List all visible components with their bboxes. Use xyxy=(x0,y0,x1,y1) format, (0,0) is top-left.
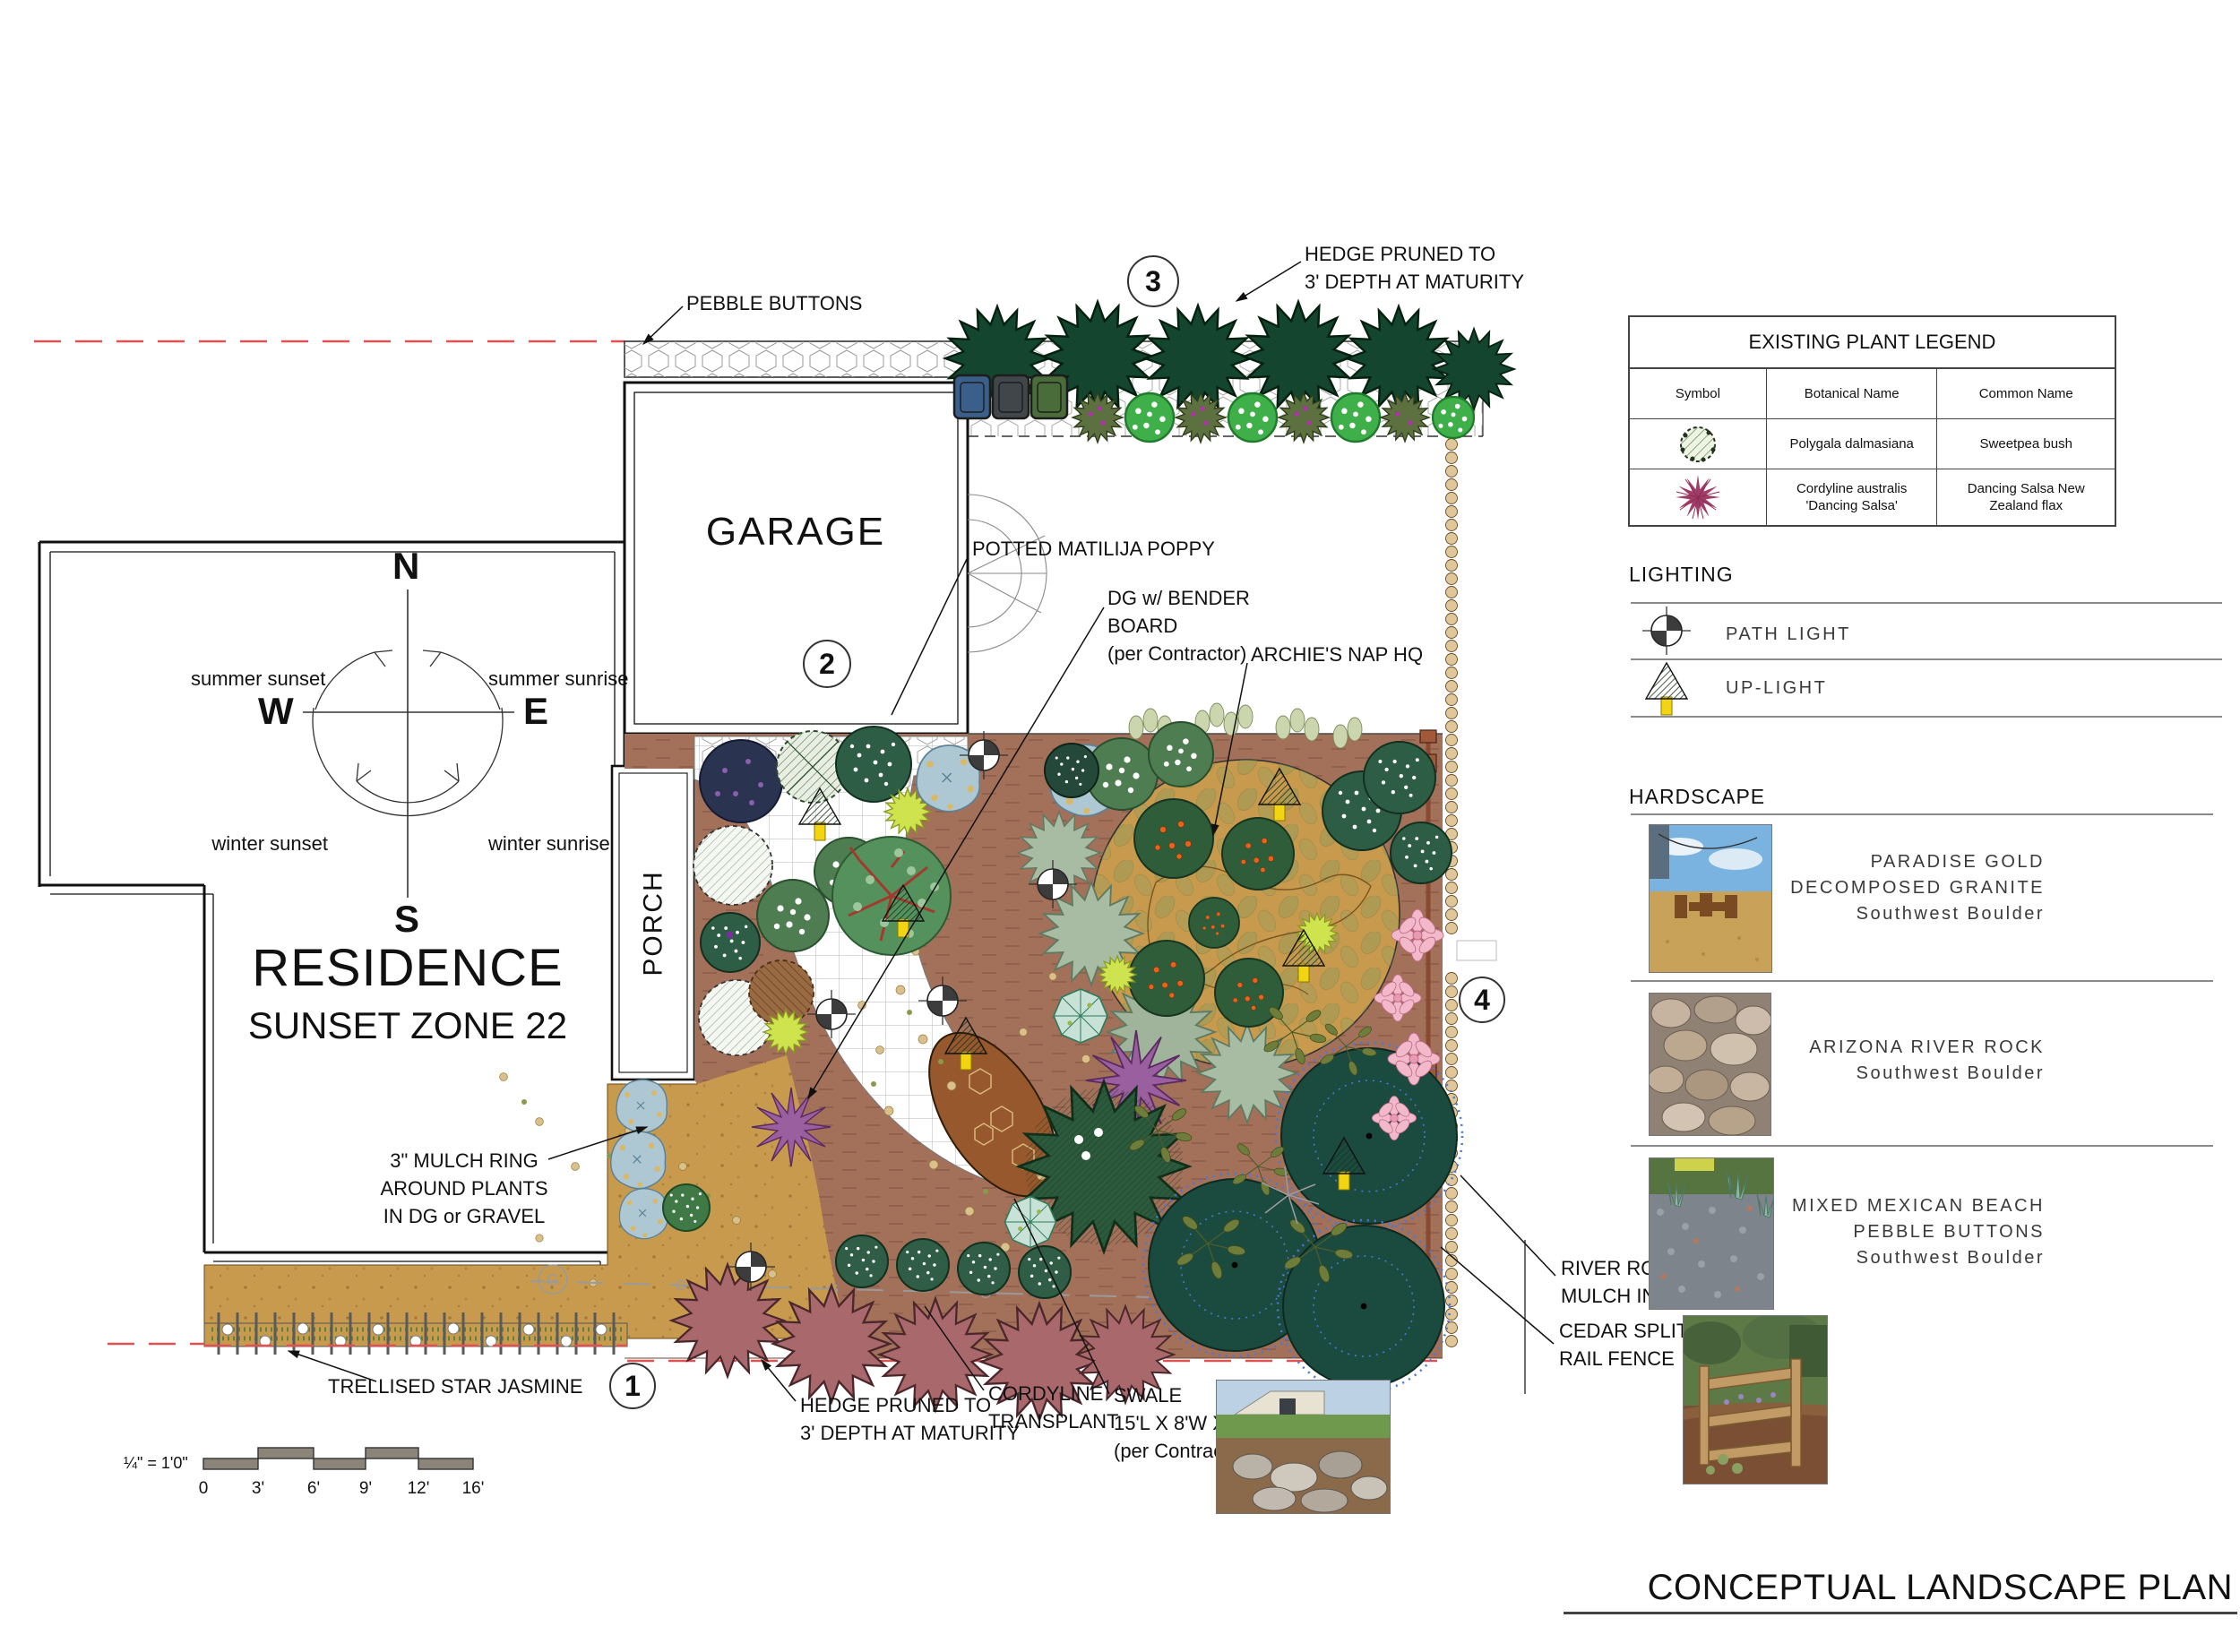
existing-tree-fan xyxy=(968,495,1047,652)
legend-header-botanical: Botanical Name xyxy=(1767,369,1938,419)
hedge-bottom-label: HEDGE PRUNED TO 3' DEPTH AT MATURITY xyxy=(800,1391,1020,1447)
path-light-label: PATH LIGHT xyxy=(1726,622,1851,648)
divider xyxy=(1631,980,2213,982)
mexican-pebble-photo xyxy=(1649,1157,1774,1310)
compass-south: S xyxy=(394,898,419,941)
legend-header-row: Symbol Botanical Name Common Name xyxy=(1630,369,2115,419)
compass-rose xyxy=(303,589,514,898)
up-light-icon xyxy=(1646,663,1687,715)
title-block-rule xyxy=(1564,1612,2237,1614)
legend-title: EXISTING PLANT LEGEND xyxy=(1630,317,2115,369)
scale-tick-3: 3' xyxy=(240,1475,276,1502)
divider xyxy=(1631,1145,2213,1147)
river-rock-edge xyxy=(1446,439,1458,1347)
keynote-marker-2: 2 xyxy=(803,640,851,688)
divider xyxy=(1631,716,2222,718)
winter-sunrise-label: winter sunrise xyxy=(488,830,610,857)
landscape-plan-sheet: G G G G xyxy=(0,0,2240,1652)
compass-west: W xyxy=(258,690,294,733)
sheet-title: CONCEPTUAL LANDSCAPE PLAN xyxy=(1648,1568,2233,1608)
trellised-jasmine-label: TRELLISED STAR JASMINE xyxy=(328,1372,582,1400)
mexican-beach-pebble-label: MIXED MEXICAN BEACH PEBBLE BUTTONS South… xyxy=(1783,1193,2045,1271)
keynote-marker-4: 4 xyxy=(1459,977,1505,1023)
sweetpea-plant-symbol xyxy=(1630,419,1767,469)
legend-row-sweetpea: Polygala dalmasiana Sweetpea bush xyxy=(1630,419,2115,469)
keynote-marker-3: 3 xyxy=(1127,255,1179,307)
garage-label: GARAGE xyxy=(661,518,930,546)
cordyline-transplant-label: CORDYLINE TRANSPLANT xyxy=(988,1380,1118,1435)
winter-sunset-label: winter sunset xyxy=(194,830,328,857)
river-rock-photo xyxy=(1649,993,1771,1136)
divider xyxy=(1631,658,2222,660)
decomposed-granite-photo xyxy=(1649,824,1772,973)
compass-north: N xyxy=(392,545,419,588)
residence-subtitle: SUNSET ZONE 22 xyxy=(215,1005,600,1046)
fence-gap-marker xyxy=(1457,941,1496,960)
svg-text:G: G xyxy=(547,1271,559,1289)
cedar-fence-photo xyxy=(1683,1315,1828,1484)
existing-plant-legend: EXISTING PLANT LEGEND Symbol Botanical N… xyxy=(1628,315,2116,527)
legend-header-common: Common Name xyxy=(1937,369,2115,419)
mulch-ring-label: 3" MULCH RING AROUND PLANTS IN DG or GRA… xyxy=(366,1147,563,1230)
hardscape-section-title: HARDSCAPE xyxy=(1629,785,1765,809)
pebble-buttons-strip xyxy=(625,341,968,377)
swale-photo xyxy=(1216,1380,1391,1514)
scale-tick-9: 9' xyxy=(348,1475,383,1502)
divider xyxy=(1631,813,2213,815)
lighting-section-title: LIGHTING xyxy=(1629,563,1734,587)
legend-row-flax: Cordyline australis 'Dancing Salsa' Danc… xyxy=(1630,469,2115,525)
cedar-fence-note: CEDAR SPLIT- RAIL FENCE xyxy=(1559,1317,1693,1372)
residence-title: RESIDENCE xyxy=(215,942,600,994)
svg-text:G: G xyxy=(676,1278,686,1294)
paradise-gold-label: PARADISE GOLD DECOMPOSED GRANITE Southwe… xyxy=(1783,849,2045,927)
porch-label: PORCH xyxy=(640,861,668,986)
up-light-label: UP-LIGHT xyxy=(1726,675,1827,701)
keynote-marker-1: 1 xyxy=(609,1363,656,1409)
arizona-river-rock-label: ARIZONA RIVER ROCK Southwest Boulder xyxy=(1783,1035,2045,1087)
summer-sunset-label: summer sunset xyxy=(191,665,325,693)
summer-sunrise-label: summer sunrise xyxy=(488,665,628,693)
scale-ratio-label: ¼" = 1'0" xyxy=(124,1450,188,1477)
legend-header-symbol: Symbol xyxy=(1630,369,1767,419)
garage-outline xyxy=(625,383,968,734)
flax-starburst-symbol xyxy=(1630,469,1767,525)
scale-tick-6: 6' xyxy=(296,1475,332,1502)
scale-tick-12: 12' xyxy=(401,1475,436,1502)
pebble-buttons-label: PEBBLE BUTTONS xyxy=(686,289,862,317)
potted-poppy-label: POTTED MATILIJA POPPY xyxy=(972,535,1215,563)
archies-nap-label: ARCHIE'S NAP HQ xyxy=(1251,641,1423,668)
hedge-top-label: HEDGE PRUNED TO 3' DEPTH AT MATURITY xyxy=(1305,240,1524,296)
scale-tick-16: 16' xyxy=(455,1475,491,1502)
path-light-icon xyxy=(1642,607,1691,655)
dg-bender-board-label: DG w/ BENDER BOARD (per Contractor) xyxy=(1107,584,1250,667)
planter-pots-row xyxy=(954,375,1067,418)
scale-tick-0: 0 xyxy=(185,1475,221,1502)
scale-bar xyxy=(203,1448,473,1469)
compass-east: E xyxy=(523,690,548,733)
lighting-symbols xyxy=(1634,606,1706,722)
divider xyxy=(1631,602,2222,604)
